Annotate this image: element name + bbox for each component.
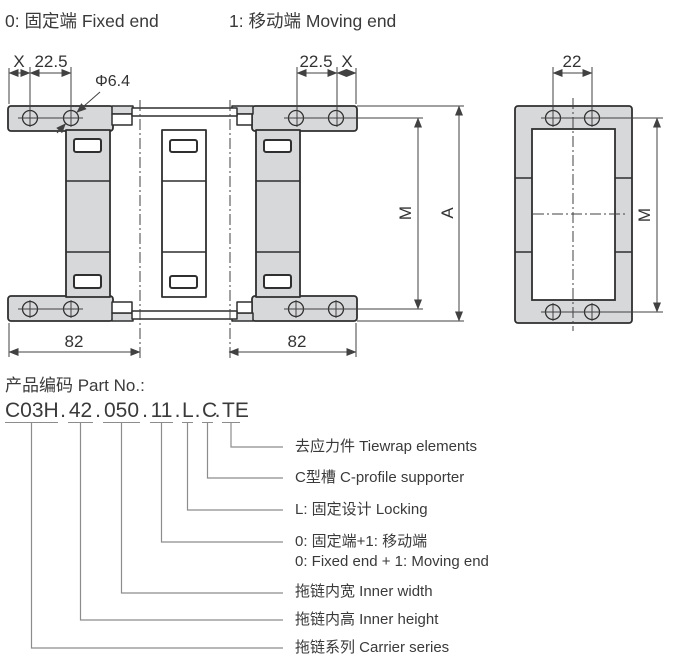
dim-m-side: M <box>635 208 655 222</box>
part-separator: . <box>140 399 150 421</box>
legend-fixed-end: 0: 固定端 Fixed end <box>5 8 159 33</box>
part-number-connector-lines <box>32 423 284 648</box>
part-segment-series: C03H <box>5 399 58 423</box>
part-segment-ends: 11 <box>150 399 173 423</box>
part-segment-locking: L <box>182 399 193 423</box>
part-separator: . <box>93 399 103 421</box>
dim-82-right: 82 <box>288 332 307 352</box>
legend-fixed-moving-ends: 0: 固定端+1: 移动端 0: Fixed end + 1: Moving e… <box>295 532 489 572</box>
legend-c-profile: C型槽 C-profile supporter <box>295 468 464 488</box>
legend-fixed-moving-ends-line2: 0: Fixed end + 1: Moving end <box>295 552 489 572</box>
dim-82-left: 82 <box>65 332 84 352</box>
part-separator: . <box>193 399 202 421</box>
legend-carrier-series: 拖链系列 Carrier series <box>295 638 449 658</box>
chain-link-plates <box>66 130 300 297</box>
dim-a-front: A <box>438 207 458 218</box>
dim-x-right: X <box>341 52 352 72</box>
part-separator: . <box>173 399 182 421</box>
legend-moving-end: 1: 移动端 Moving end <box>229 8 396 33</box>
dim-22-5-right: 22.5 <box>299 52 332 72</box>
legend-fixed-moving-ends-line1: 0: 固定端+1: 移动端 <box>295 532 489 552</box>
dim-22-side: 22 <box>563 52 582 72</box>
technical-drawing-page: 0: 固定端 Fixed end 1: 移动端 Moving end X 22.… <box>0 0 700 663</box>
part-no-heading: 产品编码 Part No.: <box>5 371 145 396</box>
legend-tiewrap-elements: 去应力件 Tiewrap elements <box>295 437 477 457</box>
legend-inner-width: 拖链内宽 Inner width <box>295 582 433 602</box>
legend-locking: L: 固定设计 Locking <box>295 500 428 520</box>
dim-x-left: X <box>13 52 24 72</box>
part-segment-tiewrap: TE <box>222 399 240 423</box>
legend-inner-height: 拖链内高 Inner height <box>295 610 438 630</box>
part-separator: . <box>58 399 68 421</box>
part-segment-inner-width: 050 <box>103 399 140 423</box>
part-segment-inner-height: 42 <box>68 399 93 423</box>
part-segment-c-profile: C <box>202 399 213 423</box>
part-separator: . <box>213 399 222 421</box>
front-view <box>8 106 357 321</box>
dim-m-front: M <box>396 206 416 220</box>
dim-22-5-left: 22.5 <box>34 52 67 72</box>
dim-hole-diameter: Φ6.4 <box>95 73 130 91</box>
